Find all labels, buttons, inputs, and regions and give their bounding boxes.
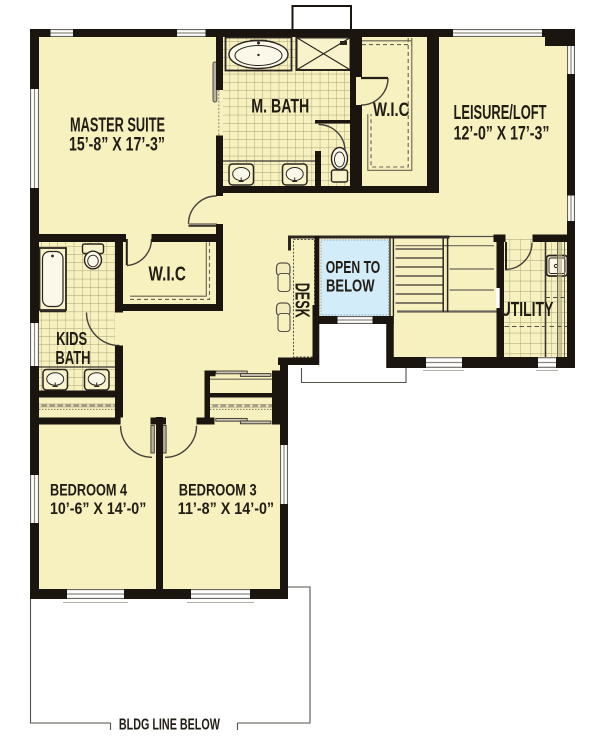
svg-text:DESK: DESK: [291, 283, 314, 318]
svg-text:M. BATH: M. BATH: [251, 96, 309, 118]
svg-text:LEISURE/LOFT: LEISURE/LOFT: [454, 102, 547, 124]
svg-text:11’-8” X 14’-0”: 11’-8” X 14’-0”: [178, 500, 274, 518]
svg-text:BELOW: BELOW: [326, 276, 375, 296]
svg-text:UTILITY: UTILITY: [501, 299, 554, 321]
svg-text:OPEN TO: OPEN TO: [326, 257, 381, 277]
svg-text:W.I.C: W.I.C: [373, 99, 409, 121]
svg-text:10’-6” X 14’-0”: 10’-6” X 14’-0”: [50, 500, 146, 518]
svg-text:W.I.C: W.I.C: [149, 264, 186, 286]
svg-text:BLDG LINE BELOW: BLDG LINE BELOW: [119, 717, 221, 734]
svg-text:12’-0” X 17’-3”: 12’-0” X 17’-3”: [454, 124, 550, 145]
svg-text:KIDS: KIDS: [56, 328, 87, 349]
svg-text:BATH: BATH: [55, 347, 90, 368]
svg-text:15’-8” X 17’-3”: 15’-8” X 17’-3”: [69, 134, 165, 156]
svg-text:BEDROOM 3: BEDROOM 3: [179, 482, 257, 500]
svg-text:BEDROOM 4: BEDROOM 4: [50, 482, 128, 500]
